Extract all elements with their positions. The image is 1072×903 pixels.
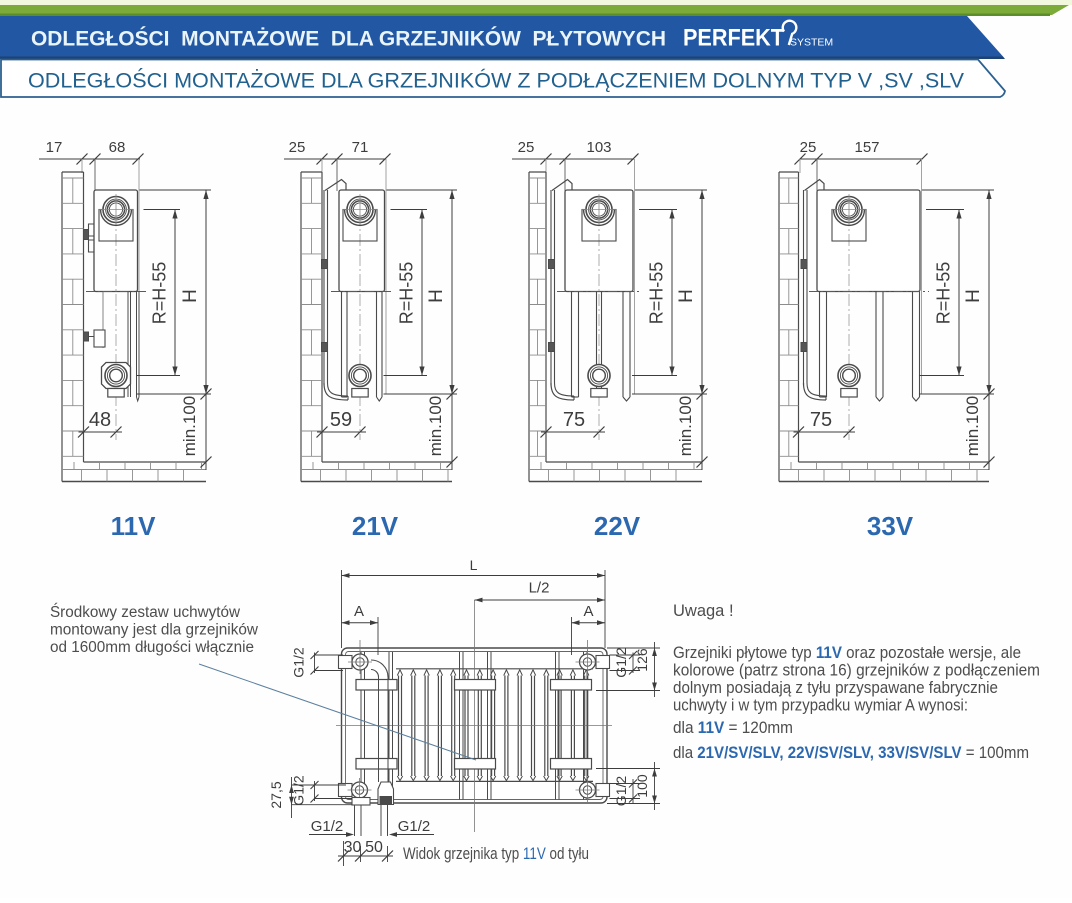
svg-text:G1/2: G1/2 bbox=[311, 818, 344, 835]
svg-text:G1/2: G1/2 bbox=[613, 647, 629, 678]
svg-text:71: 71 bbox=[352, 139, 369, 156]
svg-text:48: 48 bbox=[89, 409, 111, 431]
svg-text:G1/2: G1/2 bbox=[398, 818, 431, 835]
svg-text:30: 30 bbox=[344, 839, 362, 856]
svg-text:dla 11V = 120mm: dla 11V = 120mm bbox=[673, 719, 793, 737]
svg-text:uchwyty i w tym przypadku wymi: uchwyty i w tym przypadku wymiar A wynos… bbox=[673, 697, 968, 715]
svg-text:od 1600mm długości włącznie: od 1600mm długości włącznie bbox=[50, 639, 254, 656]
svg-text:25: 25 bbox=[289, 139, 306, 156]
svg-text:17: 17 bbox=[46, 139, 63, 156]
svg-text:H: H bbox=[963, 289, 984, 303]
svg-text:montowany jest dla grzejników: montowany jest dla grzejników bbox=[50, 622, 259, 639]
svg-text:75: 75 bbox=[563, 409, 585, 431]
svg-text:H: H bbox=[426, 289, 447, 303]
svg-text:L/2: L/2 bbox=[529, 580, 550, 597]
svg-text:R=H-55: R=H-55 bbox=[150, 262, 170, 325]
svg-text:L: L bbox=[470, 557, 478, 573]
svg-text:R=H-55: R=H-55 bbox=[647, 262, 667, 325]
svg-text:ODLEGŁOŚCI MONTAŻOWE DLA GRZ: ODLEGŁOŚCI MONTAŻOWE DLA GRZEJNIKÓW PŁYT… bbox=[31, 26, 666, 51]
svg-text:157: 157 bbox=[854, 139, 879, 156]
svg-text:21V: 21V bbox=[352, 511, 399, 541]
svg-text:A: A bbox=[583, 603, 593, 620]
svg-text:Grzejniki płytowe typ 11V oraz: Grzejniki płytowe typ 11V oraz pozostałe… bbox=[673, 644, 1021, 662]
svg-text:A: A bbox=[354, 603, 364, 620]
svg-text:59: 59 bbox=[330, 409, 352, 431]
svg-text:H: H bbox=[180, 289, 201, 303]
svg-text:PERFEKT: PERFEKT bbox=[683, 25, 784, 52]
svg-text:103: 103 bbox=[586, 139, 611, 156]
svg-text:min.100: min.100 bbox=[676, 396, 695, 456]
svg-text:dla 21V/SV/SLV, 22V/SV/SLV, 33: dla 21V/SV/SLV, 22V/SV/SLV, 33V/SV/SLV =… bbox=[673, 744, 1029, 762]
svg-text:min.100: min.100 bbox=[426, 396, 445, 456]
svg-text:G1/2: G1/2 bbox=[291, 647, 307, 678]
svg-text:min.100: min.100 bbox=[963, 396, 982, 456]
svg-text:126: 126 bbox=[634, 648, 650, 672]
svg-text:Widok grzejnika typ 11V od tył: Widok grzejnika typ 11V od tyłu bbox=[403, 845, 589, 863]
svg-text:75: 75 bbox=[810, 409, 832, 431]
svg-text:min.100: min.100 bbox=[180, 396, 199, 456]
svg-text:22V: 22V bbox=[594, 511, 641, 541]
svg-text:dolnym posiadają z tyłu przysp: dolnym posiadają z tyłu przyspawane fabr… bbox=[673, 679, 998, 697]
svg-text:33V: 33V bbox=[867, 511, 914, 541]
svg-text:G1/2: G1/2 bbox=[613, 776, 629, 807]
svg-text:R=H-55: R=H-55 bbox=[934, 262, 954, 325]
svg-text:SYSTEM: SYSTEM bbox=[790, 37, 833, 49]
svg-text:R=H-55: R=H-55 bbox=[397, 262, 417, 325]
svg-text:Środkowy zestaw uchwytów: Środkowy zestaw uchwytów bbox=[50, 603, 241, 621]
svg-text:27,5: 27,5 bbox=[268, 781, 284, 808]
svg-text:25: 25 bbox=[800, 139, 817, 156]
svg-text:ODLEGŁOŚCI MONTAŻOWE DLA GRZEJ: ODLEGŁOŚCI MONTAŻOWE DLA GRZEJNIKÓW Z PO… bbox=[28, 68, 965, 93]
svg-text:H: H bbox=[676, 289, 697, 303]
svg-text:68: 68 bbox=[109, 139, 126, 156]
svg-text:50: 50 bbox=[365, 839, 383, 856]
svg-text:25: 25 bbox=[518, 139, 535, 156]
svg-text:kolorowe (patrz strona 16) grz: kolorowe (patrz strona 16) grzejników z … bbox=[673, 662, 1040, 680]
svg-text:11V: 11V bbox=[111, 511, 156, 541]
svg-text:100: 100 bbox=[634, 774, 650, 798]
svg-text:Uwaga !: Uwaga ! bbox=[673, 602, 734, 620]
